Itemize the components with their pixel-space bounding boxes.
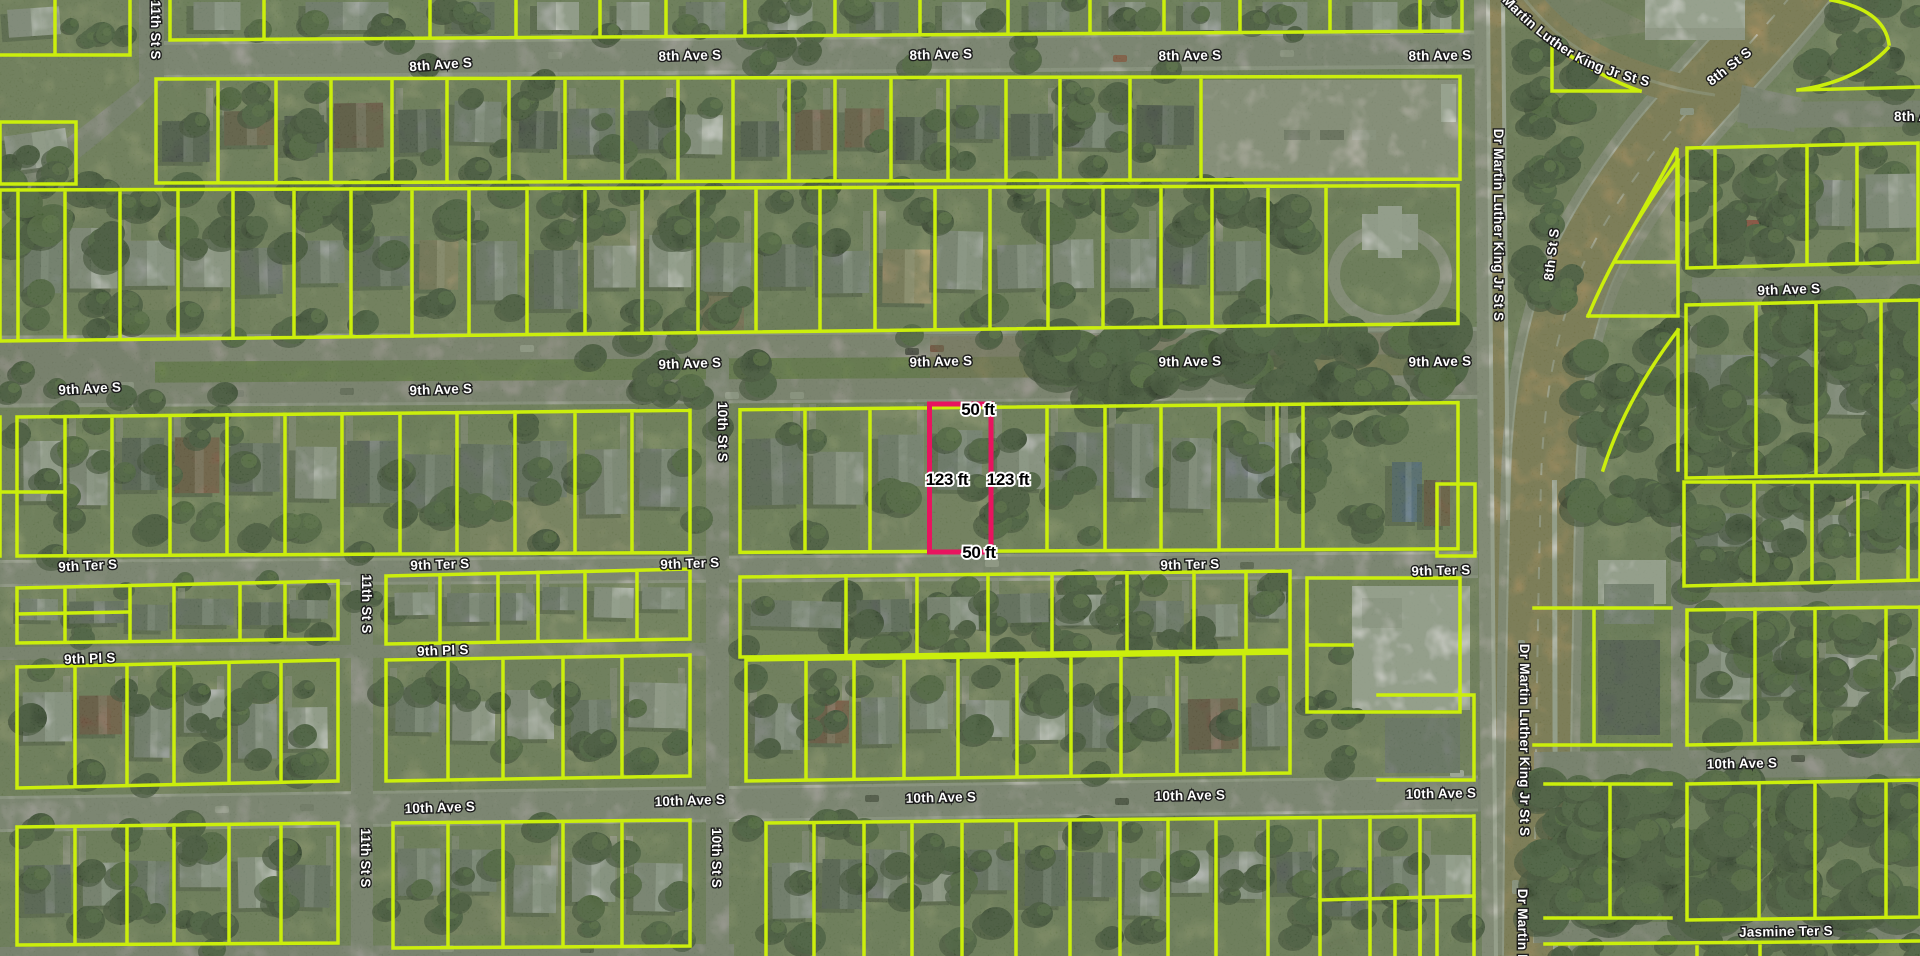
svg-text:123 ft: 123 ft bbox=[987, 470, 1030, 489]
svg-text:8th Ave S: 8th Ave S bbox=[909, 46, 972, 63]
svg-text:9th Ave S: 9th Ave S bbox=[1408, 353, 1471, 369]
svg-text:10th Ave S: 10th Ave S bbox=[1707, 755, 1778, 771]
svg-text:8th Ave S: 8th Ave S bbox=[658, 47, 721, 64]
svg-text:9th Ave S: 9th Ave S bbox=[909, 353, 972, 370]
svg-text:9th Ter S: 9th Ter S bbox=[58, 556, 118, 574]
svg-text:11th St S: 11th St S bbox=[359, 574, 374, 633]
svg-text:9th Pl S: 9th Pl S bbox=[417, 642, 469, 659]
svg-text:Jasmine Ter S: Jasmine Ter S bbox=[1739, 923, 1833, 940]
svg-text:10th Ave S: 10th Ave S bbox=[404, 799, 475, 816]
svg-text:10th Ave S: 10th Ave S bbox=[1406, 785, 1477, 801]
svg-text:10th Ave S: 10th Ave S bbox=[1155, 787, 1226, 803]
svg-text:50 ft: 50 ft bbox=[962, 543, 996, 562]
svg-text:8th Ave S: 8th Ave S bbox=[1408, 47, 1471, 63]
svg-text:Dr Martin Luther King Jr St S: Dr Martin Luther King Jr St S bbox=[1517, 644, 1532, 837]
svg-text:11th St S: 11th St S bbox=[148, 0, 163, 59]
svg-text:Dr Martin Luther King Jr St S: Dr Martin Luther King Jr St S bbox=[1491, 129, 1506, 322]
svg-text:9th Ter S: 9th Ter S bbox=[410, 556, 470, 573]
svg-text:8th Ave S: 8th Ave S bbox=[1158, 47, 1221, 63]
svg-text:9th Ter S: 9th Ter S bbox=[660, 555, 720, 572]
svg-text:10th St S: 10th St S bbox=[715, 402, 730, 462]
svg-text:11th St S: 11th St S bbox=[358, 828, 373, 887]
svg-text:9th Ter S: 9th Ter S bbox=[1160, 556, 1219, 573]
svg-text:9th Ave S: 9th Ave S bbox=[409, 381, 472, 398]
svg-text:Dr Martin Lu: Dr Martin Lu bbox=[1515, 889, 1530, 956]
svg-text:9th Pl S: 9th Pl S bbox=[64, 650, 116, 667]
svg-text:9th Ave S: 9th Ave S bbox=[658, 355, 721, 372]
svg-text:10th Ave S: 10th Ave S bbox=[905, 789, 976, 806]
svg-text:9th Ave S: 9th Ave S bbox=[1757, 281, 1820, 298]
svg-text:8th Ave S: 8th Ave S bbox=[1894, 109, 1920, 124]
svg-text:9th Ave S: 9th Ave S bbox=[1158, 353, 1221, 369]
svg-text:10th St S: 10th St S bbox=[709, 828, 724, 888]
svg-text:10th Ave S: 10th Ave S bbox=[654, 792, 725, 809]
svg-text:50 ft: 50 ft bbox=[961, 400, 995, 419]
svg-text:123 ft: 123 ft bbox=[926, 470, 969, 489]
svg-text:9th Ter S: 9th Ter S bbox=[1411, 562, 1470, 579]
